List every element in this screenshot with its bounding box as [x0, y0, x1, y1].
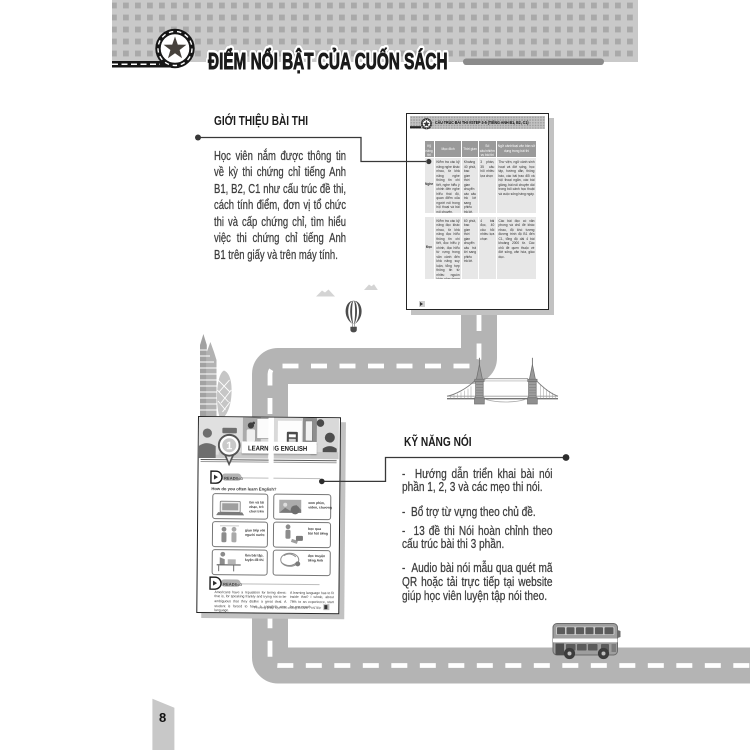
svg-text:8: 8: [159, 710, 166, 725]
